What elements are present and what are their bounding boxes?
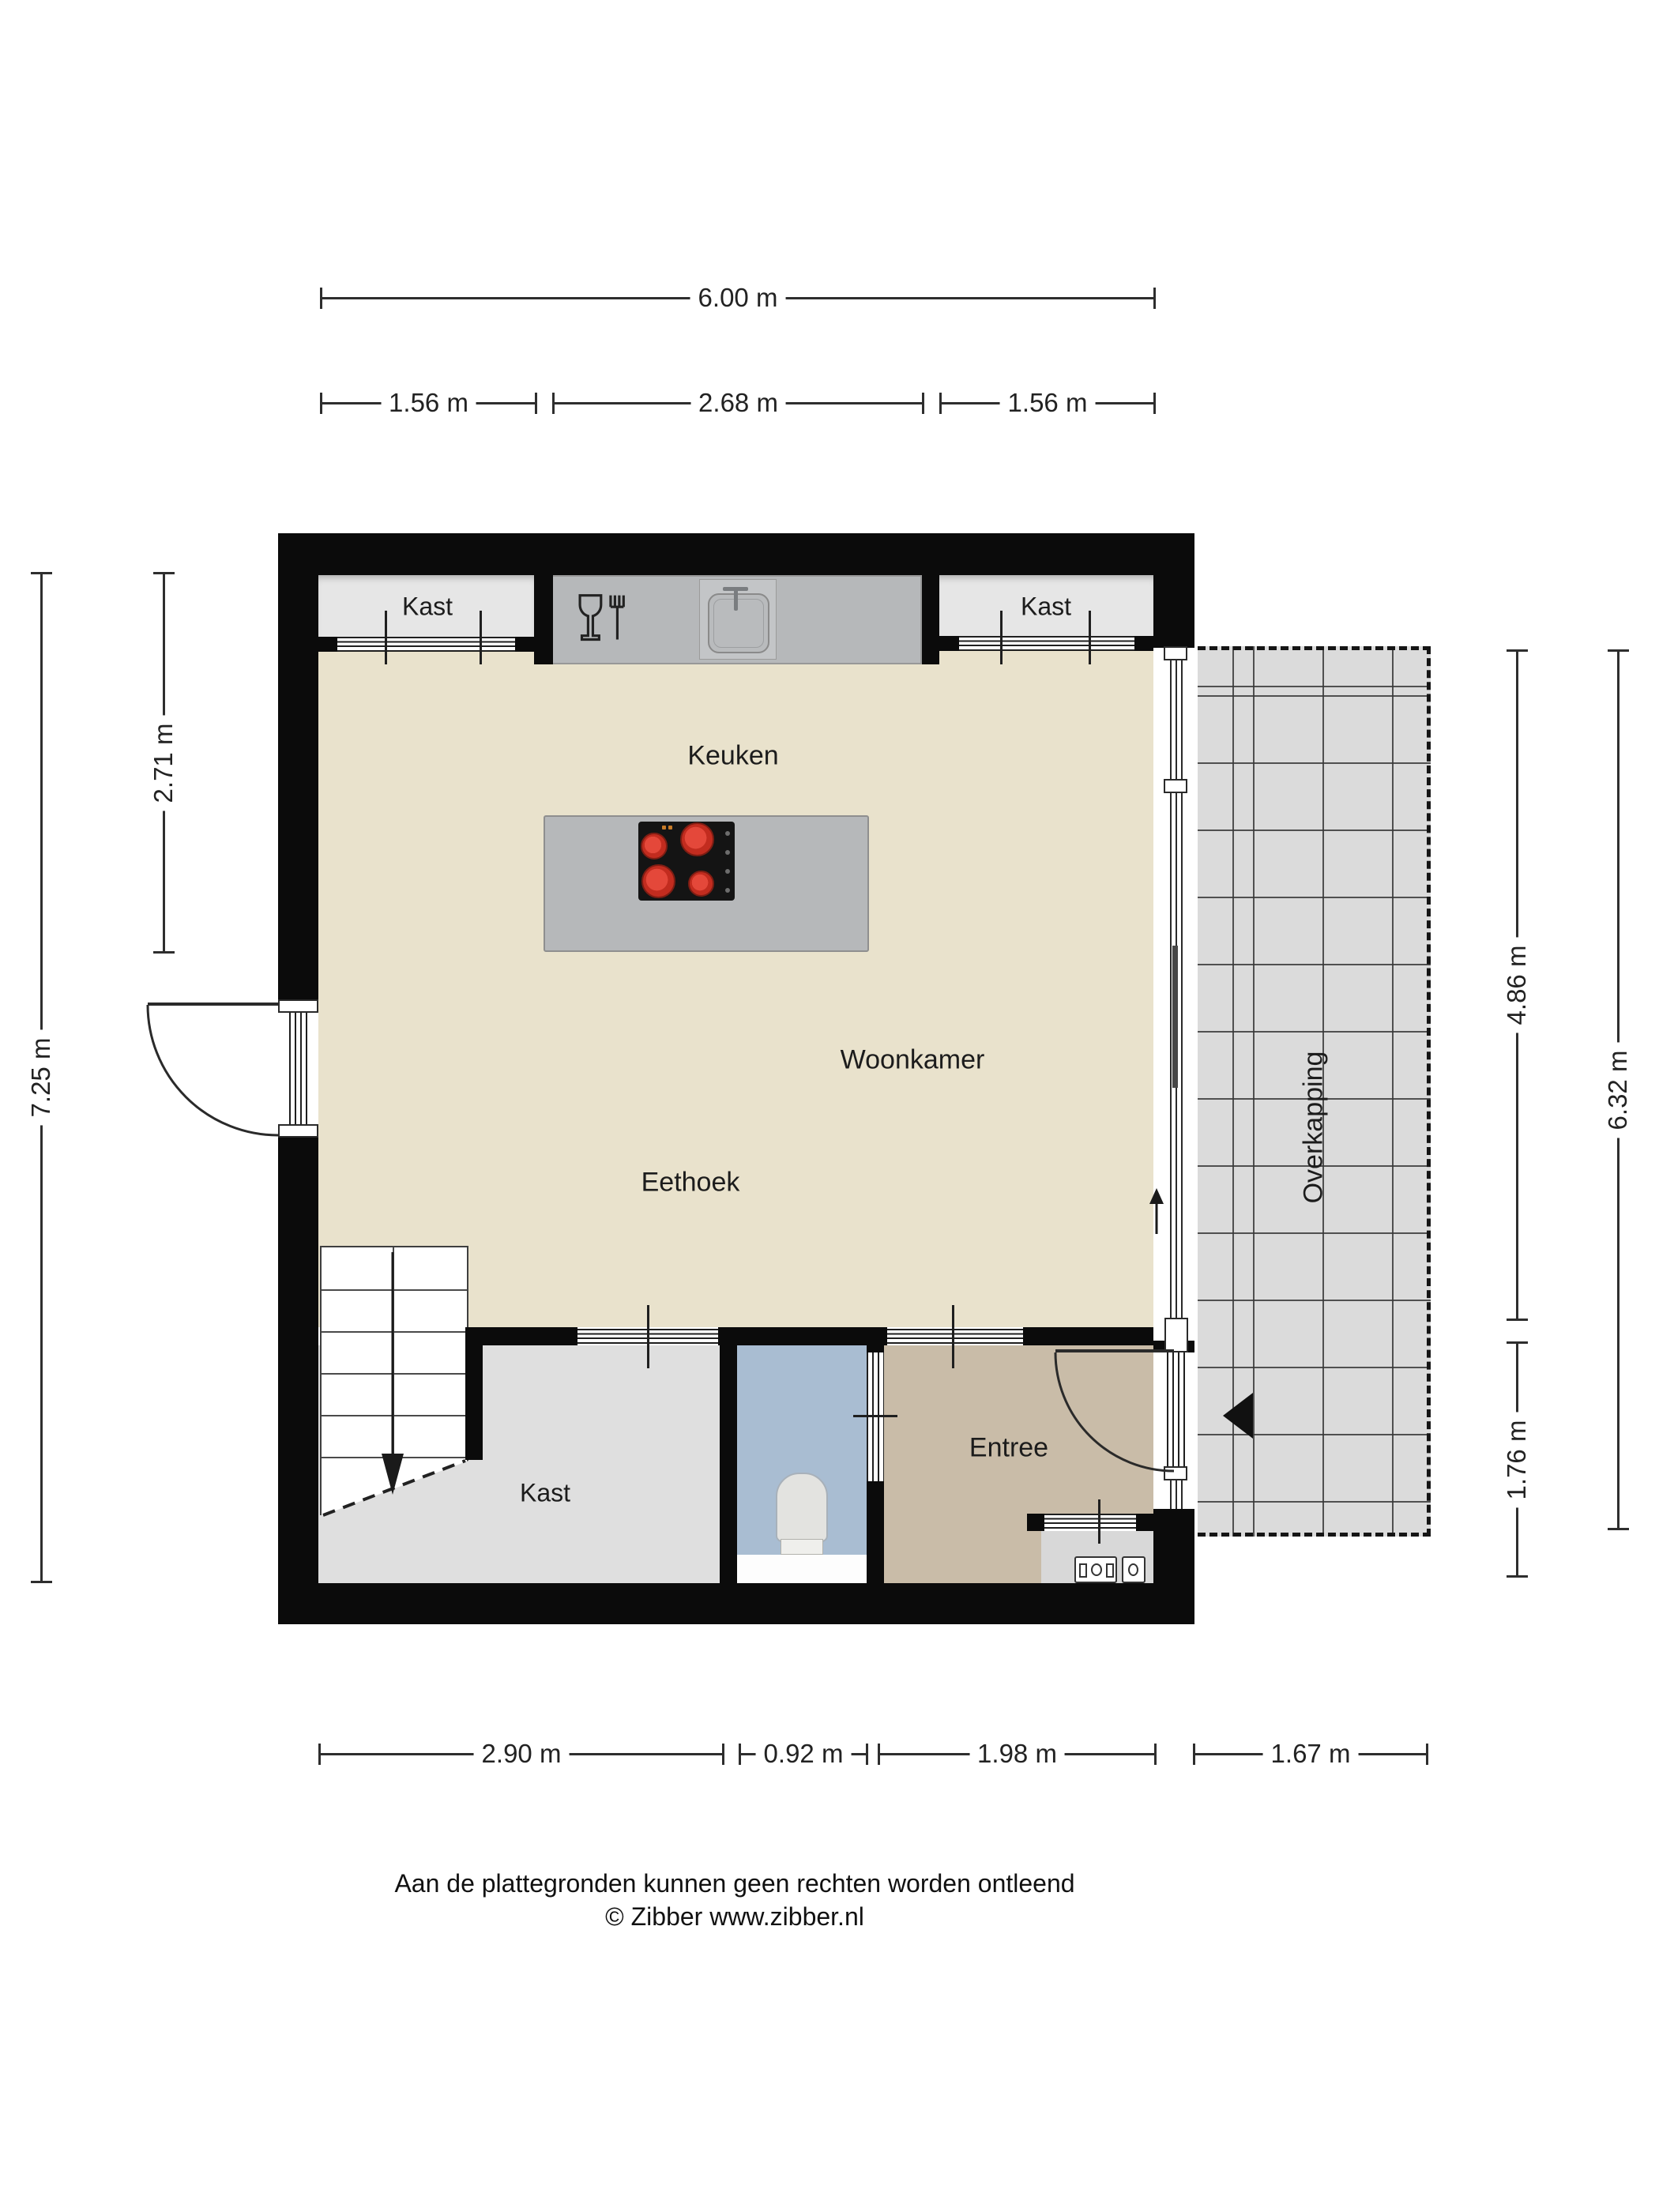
dimension-label: 1.56 m	[1000, 388, 1096, 418]
burner	[641, 864, 675, 898]
cooktop-knob	[725, 888, 730, 893]
dimension-bottom-seg-1: 2.90 m	[320, 1753, 723, 1755]
dimension-bottom-seg-2: 0.92 m	[740, 1753, 867, 1755]
room-label-kast-bottom: Kast	[520, 1479, 570, 1508]
dimension-label: 1.56 m	[381, 388, 476, 418]
wall-toilet-right-top	[867, 1345, 884, 1352]
wall-interior-band-1	[467, 1327, 577, 1345]
window-frame	[1164, 779, 1187, 793]
wall-counter-stub-right	[922, 575, 939, 664]
stair-step	[322, 1289, 467, 1291]
toilet-icon	[776, 1473, 828, 1542]
room-label-keuken: Keuken	[687, 741, 778, 772]
door-frame	[278, 999, 318, 1013]
wall-hatch-block	[1134, 636, 1153, 651]
door-tick	[1000, 611, 1003, 664]
dimension-top-seg-3: 1.56 m	[941, 402, 1154, 404]
wall-right-top-stub	[1153, 575, 1194, 648]
dimension-left-upper: 2.71 m	[163, 574, 165, 952]
door-tick	[1089, 611, 1091, 664]
room-toilet-back-strip	[737, 1555, 867, 1583]
cooktop-knob	[725, 850, 730, 855]
meter-box-icon	[1074, 1556, 1117, 1583]
window-frame	[1164, 646, 1187, 660]
cooktop-indicator	[662, 826, 666, 829]
burner	[688, 871, 714, 897]
sidelight-window	[1167, 1480, 1186, 1509]
meter-cupboard-door	[1044, 1514, 1136, 1531]
dimension-label: 2.68 m	[690, 388, 786, 418]
room-label-eethoek: Eethoek	[641, 1168, 740, 1198]
stair-divider	[393, 1247, 394, 1518]
stair-step	[322, 1457, 467, 1458]
cooktop-icon	[638, 822, 735, 901]
dimension-right-lower: 1.76 m	[1516, 1343, 1518, 1576]
footer-disclaimer: Aan de plattegronden kunnen geen rechten…	[394, 1869, 1074, 1898]
dimension-top-total: 6.00 m	[322, 297, 1154, 299]
door-tick	[853, 1415, 897, 1417]
dimension-label: 1.67 m	[1263, 1739, 1359, 1769]
door-swing-arc-icon-left	[148, 1004, 278, 1135]
sink-basin-inner	[713, 599, 764, 648]
dimension-bottom-seg-4: 1.67 m	[1194, 1753, 1427, 1755]
room-label-entree: Entree	[969, 1433, 1048, 1464]
meter-battery	[1079, 1563, 1087, 1578]
sliding-panel	[1172, 946, 1178, 1088]
burner	[641, 833, 668, 860]
wall-toilet-left	[720, 1345, 737, 1583]
stair-step	[322, 1373, 467, 1375]
wall-meter-divider-right	[1136, 1514, 1153, 1531]
dimension-label: 0.92 m	[756, 1739, 852, 1769]
wall-left-lower	[278, 1136, 318, 1583]
dimension-top-seg-1: 1.56 m	[322, 402, 536, 404]
cooktop-knob	[725, 869, 730, 874]
stair-step	[322, 1415, 467, 1416]
front-door-jamb	[1167, 1352, 1186, 1469]
wall-top	[278, 533, 1194, 575]
wall-hatch-block	[939, 636, 959, 651]
meter-dial	[1091, 1563, 1102, 1576]
dimension-left-total: 7.25 m	[40, 574, 43, 1582]
sliding-door-kast-left	[337, 637, 515, 652]
dimension-top-seg-2: 2.68 m	[554, 402, 923, 404]
faucet-stem	[734, 587, 738, 611]
meter-box-icon	[1122, 1556, 1145, 1583]
dimension-label: 4.86 m	[1502, 938, 1532, 1033]
wall-stairs-side	[465, 1327, 483, 1460]
door-tick	[480, 611, 482, 664]
sliding-door-kast-right	[959, 636, 1134, 651]
door-tick	[385, 611, 387, 664]
door-tick	[1098, 1499, 1100, 1544]
wall-bottom	[278, 1583, 1194, 1624]
dimension-right-total: 6.32 m	[1617, 651, 1619, 1529]
dimension-right-upper: 4.86 m	[1516, 651, 1518, 1319]
wall-meter-divider-left	[1027, 1514, 1044, 1531]
door-tick	[647, 1305, 649, 1368]
wall-right-bottom-stub	[1153, 1509, 1194, 1583]
sliding-door-entree	[887, 1329, 1023, 1344]
window-frame	[1164, 1318, 1188, 1352]
dimension-label: 1.76 m	[1502, 1412, 1532, 1507]
room-label-kast-top-left: Kast	[402, 592, 453, 622]
dimension-label: 6.32 m	[1603, 1042, 1633, 1138]
dimension-label: 7.25 m	[26, 1030, 56, 1126]
wall-counter-stub-left	[534, 575, 553, 664]
sink-icon	[699, 579, 777, 660]
wall-left-upper	[278, 575, 318, 1001]
dimension-bottom-seg-3: 1.98 m	[879, 1753, 1155, 1755]
stair-step	[322, 1331, 467, 1333]
room-label-overkapping: Overkapping	[1299, 1051, 1330, 1204]
floor-plan-page: Overkapping	[0, 0, 1659, 2212]
meter-battery	[1106, 1563, 1114, 1578]
room-label-kast-top-right: Kast	[1021, 592, 1071, 622]
door-tick	[952, 1305, 954, 1368]
room-label-woonkamer: Woonkamer	[841, 1045, 985, 1076]
meter-dial	[1128, 1563, 1138, 1576]
dimension-label: 1.98 m	[969, 1739, 1065, 1769]
burner	[680, 822, 714, 856]
dimension-label: 2.71 m	[149, 715, 179, 811]
left-door-jamb	[289, 1013, 310, 1124]
sink-basin	[708, 593, 769, 653]
dimension-label: 6.00 m	[690, 283, 786, 313]
door-frame	[1164, 1466, 1187, 1480]
wall-hatch-block	[515, 637, 534, 652]
wall-interior-band-2	[718, 1327, 887, 1345]
cooktop-indicator	[668, 826, 672, 829]
wall-toilet-right-bottom	[867, 1481, 884, 1583]
wall-interior-band-3	[1023, 1327, 1153, 1345]
wall-hatch-block	[318, 637, 337, 652]
dimension-label: 2.90 m	[474, 1739, 570, 1769]
cooktop-knob	[725, 831, 730, 836]
toilet-base	[781, 1539, 823, 1555]
door-frame	[278, 1124, 318, 1138]
footer-copyright: © Zibber www.zibber.nl	[605, 1902, 864, 1932]
